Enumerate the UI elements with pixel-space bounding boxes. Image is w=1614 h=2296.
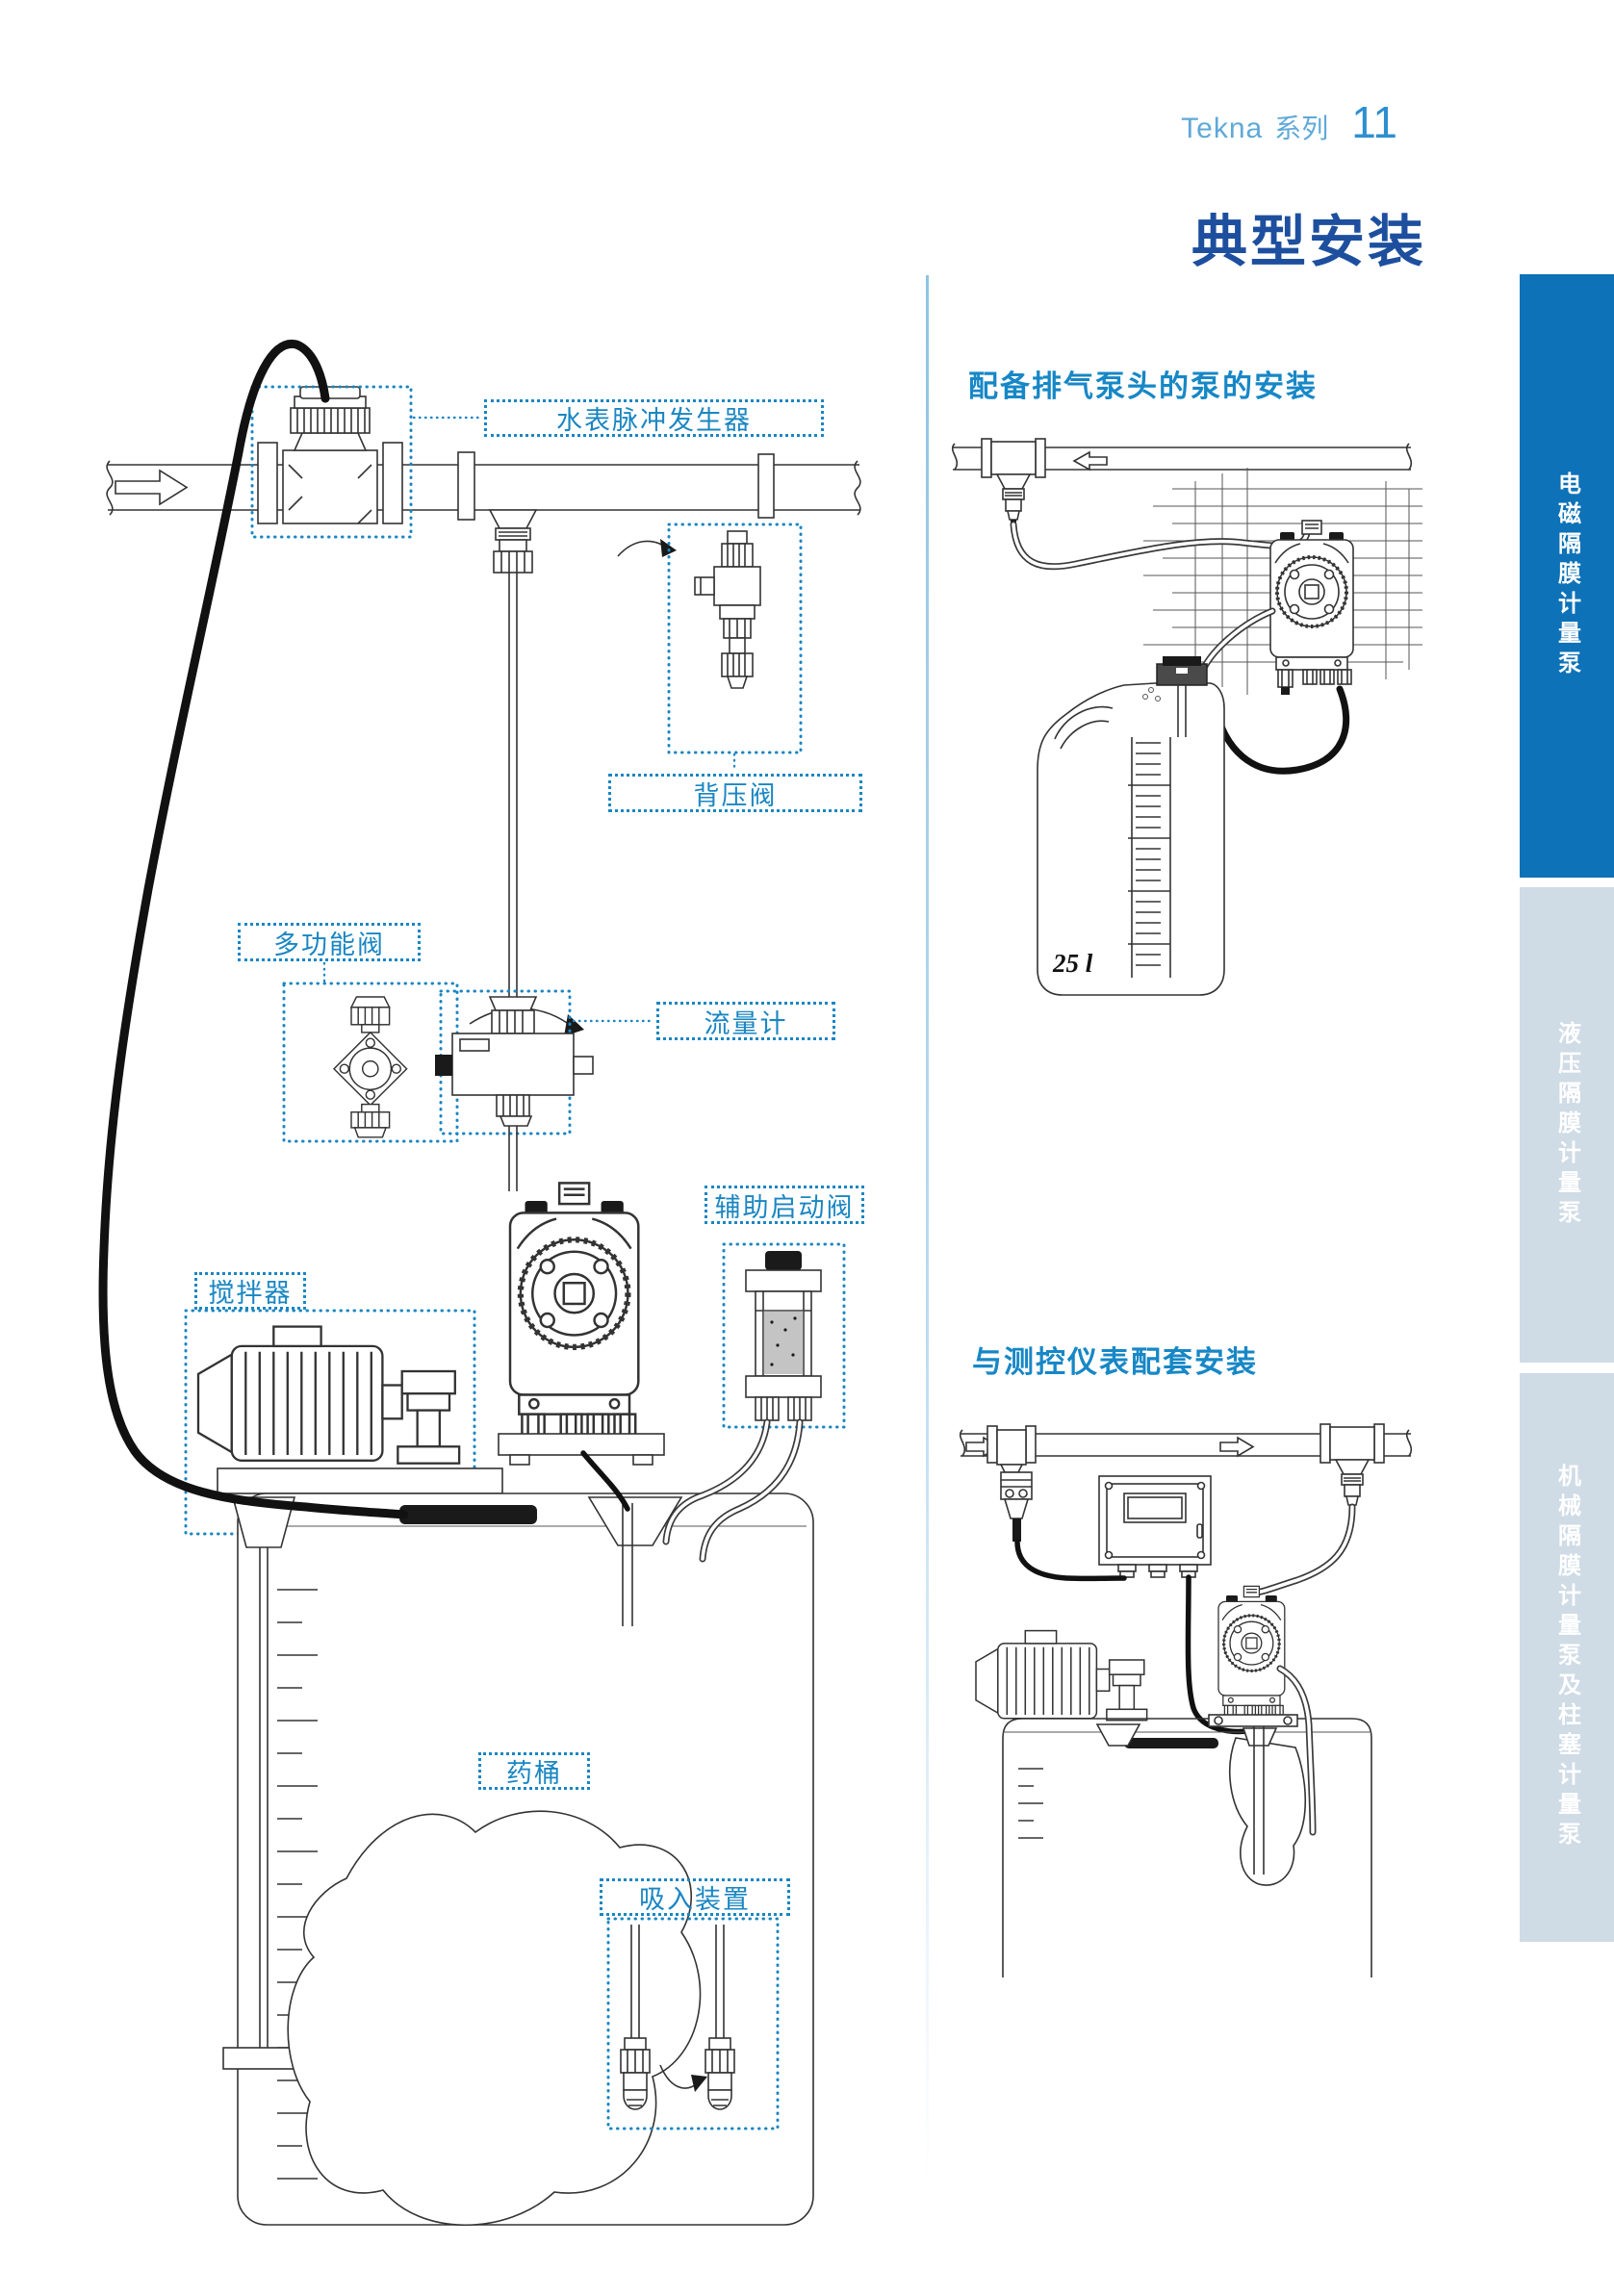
- page-title: 典型安装: [1191, 196, 1426, 277]
- sensor-probe: [987, 1426, 1036, 1542]
- chemical-tank-illustration: [223, 1493, 813, 2225]
- injection-tee-1: [982, 439, 1045, 524]
- label-flow-meter: 流量计: [656, 1002, 835, 1040]
- section-heading-degassing: 配备排气泵头的泵的安装: [968, 362, 1318, 405]
- label-mixer: 搅拌器: [194, 1272, 306, 1310]
- page-number: 11: [1351, 96, 1397, 148]
- series-name: Tekna: [1181, 113, 1263, 145]
- sidebar-tab-label: 机械隔膜计量泵及柱塞计量泵: [1550, 1464, 1584, 1851]
- injection-tee-2: [1320, 1424, 1384, 1510]
- column-divider: [926, 275, 929, 2190]
- label-back-pressure-valve: 背压阀: [608, 774, 862, 812]
- pump-cable-1: [1217, 689, 1346, 771]
- curved-arrow: [618, 541, 668, 556]
- pump-degassing-head: [1270, 521, 1353, 695]
- pump-2: [1218, 1586, 1285, 1725]
- controller-illustration: [1099, 1476, 1211, 1577]
- mixer-motor-illustration: [198, 1327, 502, 1493]
- instrument-diagram: [961, 1424, 1412, 1977]
- tank-2: [1003, 1719, 1371, 1977]
- series-label: 系列: [1274, 108, 1328, 146]
- aux-start-valve-illustration: [746, 1251, 821, 1420]
- label-multifunction-valve: 多功能阀: [238, 923, 421, 961]
- tank-lid-pad: [399, 1505, 537, 1524]
- catalog-page: Tekna 系列 11 典型安装 配备排气泵头的泵的安装 与测控仪表配套安装 水…: [0, 0, 1614, 2296]
- sidebar-tab-label: 液压隔膜计量泵: [1550, 1021, 1584, 1230]
- section-heading-instrument: 与测控仪表配套安装: [972, 1338, 1258, 1381]
- installation-diagrams: [0, 0, 1614, 2296]
- degassing-head-diagram: [953, 439, 1422, 995]
- jerrycan-illustration: [1038, 656, 1224, 995]
- water-pipe: [107, 452, 860, 520]
- sidebar-tab-mechanical-diaphragm-plunger-pumps: 机械隔膜计量泵及柱塞计量泵: [1520, 1373, 1614, 1942]
- page-header: Tekna 系列 11: [1181, 96, 1397, 148]
- label-water-meter-pulse-generator: 水表脉冲发生器: [484, 399, 824, 437]
- injection-tee: [490, 510, 536, 573]
- label-auxiliary-start-valve: 辅助启动阀: [705, 1186, 864, 1224]
- multifunction-valve-illustration: [334, 997, 407, 1137]
- metering-pump-illustration: [499, 1183, 664, 1465]
- label-chemical-tank: 药桶: [478, 1752, 590, 1790]
- mixer-motor-2: [976, 1631, 1147, 1721]
- label-suction-device: 吸入装置: [600, 1878, 790, 1916]
- water-meter-illustration: [258, 387, 402, 523]
- dosing-tube-lower: [509, 1126, 517, 1191]
- dosing-tube-upper: [509, 573, 517, 997]
- sidebar-tab-label: 电磁隔膜计量泵: [1550, 472, 1584, 680]
- tank-capacity-label: 25 l: [1053, 949, 1092, 979]
- sidebar-tab-hydraulic-diaphragm-pumps: 液压隔膜计量泵: [1520, 887, 1614, 1363]
- back-pressure-valve-illustration: [695, 531, 760, 688]
- sidebar-tab-solenoid-diaphragm-pumps: 电磁隔膜计量泵: [1520, 274, 1614, 878]
- flow-arrow-right: [115, 471, 187, 504]
